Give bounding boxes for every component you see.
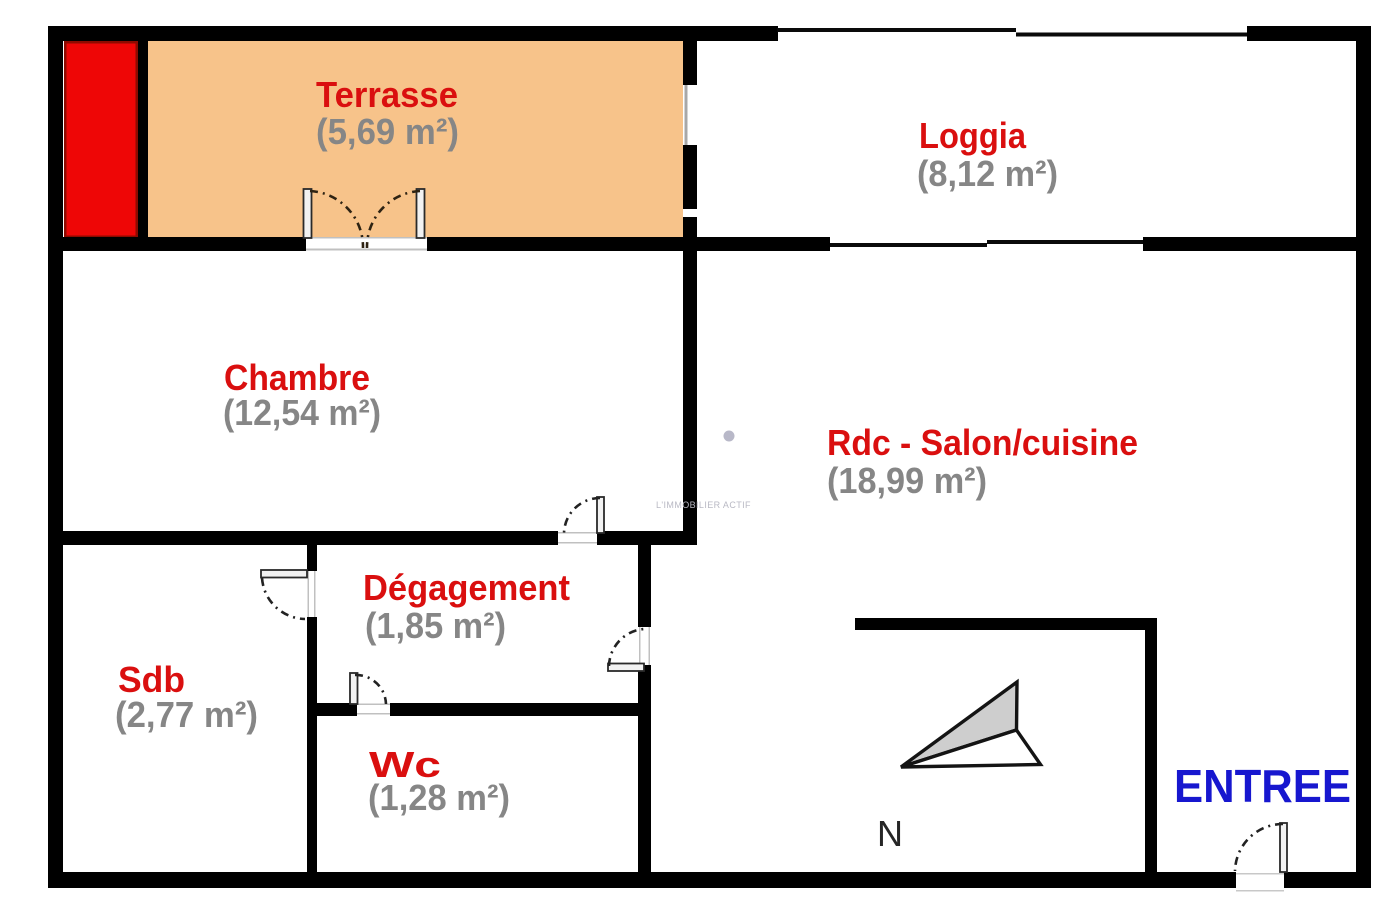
svg-text:Dégagement: Dégagement [363,567,570,608]
svg-text:N: N [877,813,903,854]
svg-text:ENTREE: ENTREE [1174,760,1351,812]
svg-text:Terrasse: Terrasse [316,74,458,115]
svg-text:(2,77 m²): (2,77 m²) [115,694,258,735]
svg-text:L'IMMOBILIER ACTIF: L'IMMOBILIER ACTIF [656,500,751,510]
svg-text:Loggia: Loggia [919,115,1027,156]
svg-text:(12,54 m²): (12,54 m²) [223,392,381,433]
svg-text:(1,28 m²): (1,28 m²) [368,777,510,818]
svg-text:(18,99 m²): (18,99 m²) [827,460,987,501]
svg-text:(5,69 m²): (5,69 m²) [316,111,459,152]
svg-text:(1,85 m²): (1,85 m²) [365,605,506,646]
svg-text:(8,12 m²): (8,12 m²) [917,153,1058,194]
svg-text:Rdc - Salon/cuisine: Rdc - Salon/cuisine [827,422,1138,463]
